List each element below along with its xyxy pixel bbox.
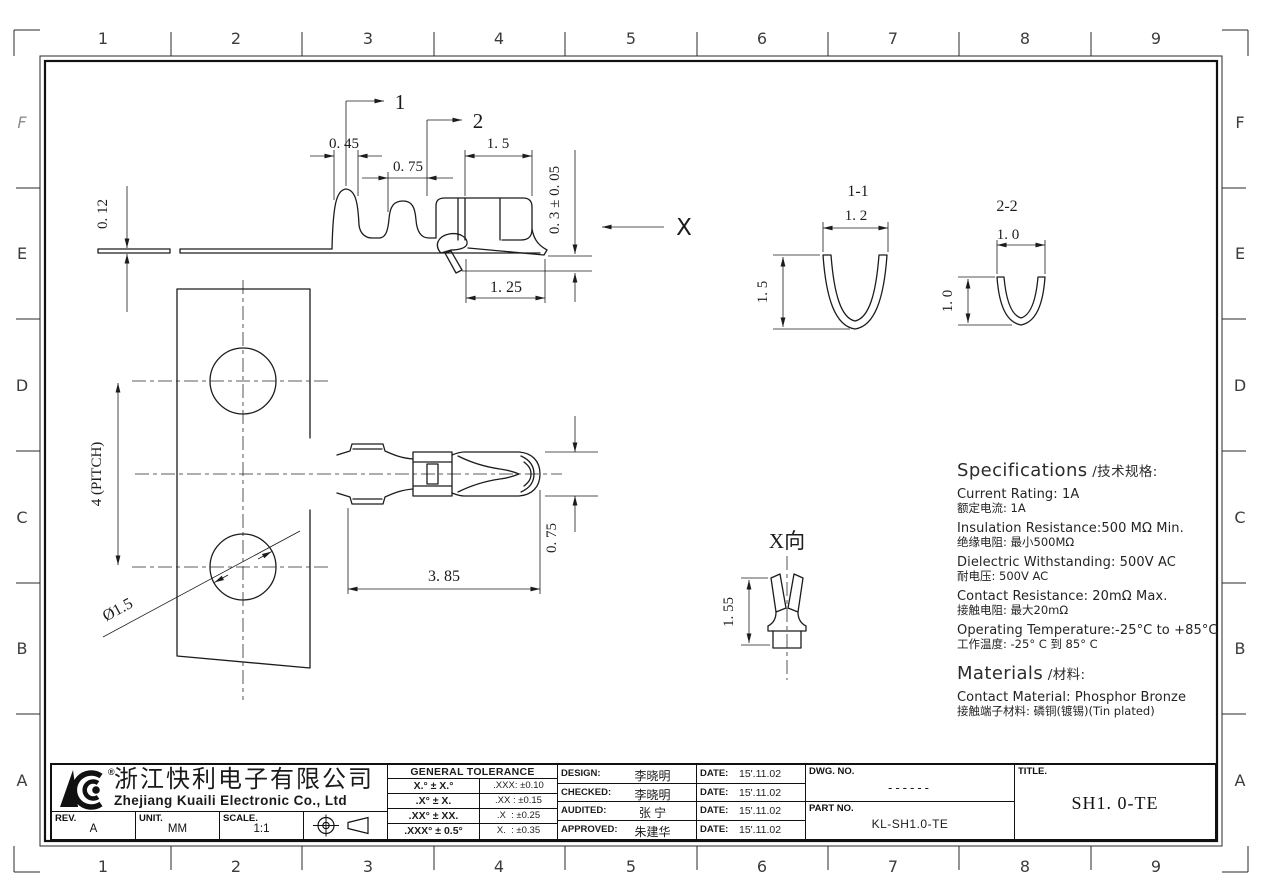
section-view-1-1: 1-1 1. 2 1. 5 bbox=[755, 183, 888, 329]
tolerance-value: .XXX: ±0.10 bbox=[480, 779, 557, 793]
checked-cell: CHECKED: 李晓明 bbox=[558, 784, 697, 803]
projection-symbol-icon bbox=[304, 812, 388, 839]
checked-name: 李晓明 bbox=[613, 786, 692, 803]
scale-cell: SCALE. 1:1 bbox=[220, 812, 304, 839]
grid-row-label: C bbox=[16, 508, 27, 527]
dim-label-1-2: 1. 2 bbox=[845, 208, 868, 224]
dim-0-75 bbox=[362, 172, 453, 212]
specifications-title-en: Specifications bbox=[957, 460, 1088, 481]
registered-mark: ® bbox=[108, 767, 115, 777]
tolerance-row: .X° ± X. .XX : ±0.15 bbox=[388, 794, 558, 809]
unit-value: MM bbox=[136, 823, 219, 835]
section-1-1-shape bbox=[823, 255, 887, 329]
company-logo bbox=[56, 766, 108, 810]
specifications-title: Specifications /技术规格: bbox=[957, 460, 1219, 481]
dim-label-pitch: 4 (PITCH) bbox=[89, 442, 105, 507]
approved-date-cell: DATE: 15'.11.02 bbox=[697, 821, 806, 840]
side-view: 0. 12 0. 45 0. 75 1. 5 1 bbox=[95, 90, 692, 312]
dim-0-3 bbox=[462, 150, 592, 302]
dim-label-1-25: 1. 25 bbox=[490, 279, 522, 296]
approved-cell: APPROVED: 朱建华 bbox=[558, 821, 697, 840]
grid-row-label: D bbox=[16, 376, 28, 395]
title-block: ® 浙江快利电子有限公司 Zhejiang Kuaili Electronic … bbox=[50, 763, 1217, 841]
tolerance-range: .XX° ± XX. bbox=[388, 809, 480, 823]
spec-item: Contact Resistance: 20mΩ Max. 接触电阻: 最大20… bbox=[957, 589, 1219, 617]
unit-cell: UNIT. MM bbox=[136, 812, 220, 839]
section-1-1-title: 1-1 bbox=[847, 183, 868, 200]
dim-label-0-3: 0. 3 ± 0. 05 bbox=[547, 166, 563, 234]
drawing-title-value: SH1. 0-TE bbox=[1015, 793, 1215, 814]
x-direction-view: X向 1. 55 bbox=[721, 529, 806, 680]
grid-column-label: 5 bbox=[626, 857, 636, 876]
company-name-cn: 浙江快利电子有限公司 bbox=[114, 768, 374, 793]
dim-label-1-5-height: 1. 5 bbox=[755, 281, 771, 304]
specifications-block: Specifications /技术规格: Current Rating: 1A… bbox=[957, 460, 1219, 718]
date-label: DATE: bbox=[700, 824, 728, 835]
drawing-sheet: 1 2 3 4 5 6 7 8 9 1 2 3 4 5 6 7 8 9 F E … bbox=[0, 0, 1262, 892]
section-callout-1-label: 1 bbox=[395, 90, 406, 114]
date-label: DATE: bbox=[700, 768, 728, 779]
cad-canvas: 1 2 3 4 5 6 7 8 9 1 2 3 4 5 6 7 8 9 F E … bbox=[0, 0, 1262, 892]
dim-label-diameter: Ø1.5 bbox=[100, 595, 136, 625]
grid-column-label: 7 bbox=[888, 29, 898, 48]
audited-cell: AUDITED: 张 宁 bbox=[558, 802, 697, 821]
dim-label-0-45: 0. 45 bbox=[329, 136, 359, 152]
section-2-2-title: 2-2 bbox=[996, 198, 1017, 215]
tolerance-range: X.° ± X.° bbox=[388, 779, 480, 793]
plan-view: 4 (PITCH) Ø1.5 3. 85 0. 75 bbox=[89, 280, 598, 700]
grid-column-label: 9 bbox=[1151, 29, 1161, 48]
grid-column-label: 4 bbox=[494, 857, 504, 876]
grid-column-label: 6 bbox=[757, 29, 767, 48]
spec-zh: 工作温度: -25° C 到 85° C bbox=[957, 638, 1219, 651]
date-value: 15'.11.02 bbox=[739, 768, 781, 780]
dim-label-1-5: 1. 5 bbox=[487, 136, 510, 152]
grid-column-label: 4 bbox=[494, 29, 504, 48]
sheet-frame bbox=[14, 30, 1248, 872]
dim-label-1-0: 1. 0 bbox=[997, 227, 1020, 243]
part-no-cell: PART NO. KL-SH1.0-TE bbox=[806, 802, 1015, 839]
dim-diameter bbox=[103, 531, 300, 637]
x-direction-label: X bbox=[676, 215, 692, 241]
company-name-en: Zhejiang Kuaili Electronic Co., Ltd bbox=[114, 793, 374, 808]
dwg-no-cell: DWG. NO. ------ bbox=[806, 765, 1015, 802]
grid-column-label: 3 bbox=[363, 29, 373, 48]
dim-label-0-75-width: 0. 75 bbox=[544, 523, 560, 553]
spec-item: Insulation Resistance:500 MΩ Min. 绝缘电阻: … bbox=[957, 521, 1219, 549]
part-no-value: KL-SH1.0-TE bbox=[806, 817, 1014, 831]
rev-cell: REV. A bbox=[52, 812, 136, 839]
tolerance-range: .X° ± X. bbox=[388, 794, 480, 808]
dwg-no-value: ------ bbox=[806, 780, 1014, 795]
date-value: 15'.11.02 bbox=[739, 787, 781, 799]
specifications-title-zh: /技术规格: bbox=[1088, 464, 1158, 480]
grid-column-label: 5 bbox=[626, 29, 636, 48]
company-cell: ® 浙江快利电子有限公司 Zhejiang Kuaili Electronic … bbox=[52, 765, 388, 812]
grid-row-label: E bbox=[17, 244, 27, 263]
spec-en: Dielectric Withstanding: 500V AC bbox=[957, 555, 1219, 570]
drawing-title-cell: TITLE. SH1. 0-TE bbox=[1015, 765, 1215, 839]
grid-row-label: B bbox=[17, 639, 28, 658]
grid-row-label: F bbox=[1235, 113, 1244, 132]
tolerance-row: .XXX° ± 0.5° X. : ±0.35 bbox=[388, 824, 558, 839]
grid-row-label: A bbox=[17, 771, 28, 790]
spec-item: Contact Material: Phosphor Bronze 接触端子材料… bbox=[957, 690, 1219, 718]
tolerance-row: X.° ± X.° .XXX: ±0.10 bbox=[388, 779, 558, 794]
audited-label: AUDITED: bbox=[561, 805, 606, 816]
spec-zh: 额定电流: 1A bbox=[957, 502, 1219, 515]
materials-title-en: Materials bbox=[957, 663, 1043, 684]
tolerance-header: GENERAL TOLERANCE bbox=[388, 765, 558, 779]
spec-en: Operating Temperature:-25°C to +85°C bbox=[957, 623, 1219, 638]
spec-zh: 耐电压: 500V AC bbox=[957, 570, 1219, 583]
section-2-2-shape bbox=[997, 277, 1045, 325]
carrier-strip bbox=[177, 289, 310, 668]
grid-column-label: 6 bbox=[757, 857, 767, 876]
dim-label-0-12: 0. 12 bbox=[95, 199, 111, 229]
spec-item: Dielectric Withstanding: 500V AC 耐电压: 50… bbox=[957, 555, 1219, 583]
tolerance-value: .X : ±0.25 bbox=[480, 809, 557, 823]
spec-item: Operating Temperature:-25°C to +85°C 工作温… bbox=[957, 623, 1219, 651]
checked-date-cell: DATE: 15'.11.02 bbox=[697, 784, 806, 803]
grid-row-label: E bbox=[1235, 244, 1245, 263]
section-view-2-2: 2-2 1. 0 1. 0 bbox=[940, 198, 1045, 325]
date-value: 15'.11.02 bbox=[739, 805, 781, 817]
part-no-label: PART NO. bbox=[809, 803, 854, 814]
dim-1-5 bbox=[465, 150, 532, 196]
design-name: 李晓明 bbox=[613, 767, 692, 784]
section-callout-2 bbox=[427, 120, 462, 196]
dim-label-3-85: 3. 85 bbox=[428, 568, 460, 585]
design-cell: DESIGN: 李晓明 bbox=[558, 765, 697, 784]
dim-1-55 bbox=[741, 578, 770, 645]
grid-column-label: 9 bbox=[1151, 857, 1161, 876]
drawing-title-label: TITLE. bbox=[1018, 766, 1047, 777]
projection-cell bbox=[304, 812, 388, 839]
spec-zh: 绝缘电阻: 最小500MΩ bbox=[957, 536, 1219, 549]
grid-row-label: A bbox=[1235, 771, 1246, 790]
spec-en: Contact Material: Phosphor Bronze bbox=[957, 690, 1219, 705]
tolerance-value: X. : ±0.35 bbox=[480, 824, 557, 839]
x-view-title: X向 bbox=[769, 529, 805, 553]
dim-label-1-55: 1. 55 bbox=[721, 597, 737, 627]
design-label: DESIGN: bbox=[561, 768, 601, 779]
approved-label: APPROVED: bbox=[561, 824, 617, 835]
date-label: DATE: bbox=[700, 805, 728, 816]
scale-value: 1:1 bbox=[220, 823, 303, 835]
spec-item: Current Rating: 1A 额定电流: 1A bbox=[957, 487, 1219, 515]
tolerance-value: .XX : ±0.15 bbox=[480, 794, 557, 808]
audited-name: 张 宁 bbox=[613, 804, 692, 821]
grid-row-label: F bbox=[17, 113, 27, 132]
grid-row-label: C bbox=[1234, 508, 1245, 527]
dwg-no-label: DWG. NO. bbox=[809, 766, 854, 777]
spec-en: Insulation Resistance:500 MΩ Min. bbox=[957, 521, 1219, 536]
materials-title-zh: /材料: bbox=[1043, 667, 1085, 683]
grid-row-label: D bbox=[1234, 376, 1246, 395]
spec-en: Contact Resistance: 20mΩ Max. bbox=[957, 589, 1219, 604]
grid-column-label: 7 bbox=[888, 857, 898, 876]
materials-title: Materials /材料: bbox=[957, 663, 1219, 684]
dim-label-1-0-height: 1. 0 bbox=[940, 290, 956, 313]
grid-column-label: 8 bbox=[1020, 29, 1030, 48]
grid-labels: 1 2 3 4 5 6 7 8 9 1 2 3 4 5 6 7 8 9 F E … bbox=[16, 29, 1246, 876]
rev-value: A bbox=[52, 823, 135, 835]
date-value: 15'.11.02 bbox=[739, 824, 781, 836]
spec-zh: 接触电阻: 最大20mΩ bbox=[957, 604, 1219, 617]
grid-column-label: 8 bbox=[1020, 857, 1030, 876]
checked-label: CHECKED: bbox=[561, 787, 611, 798]
tolerance-range: .XXX° ± 0.5° bbox=[388, 824, 480, 839]
grid-column-label: 2 bbox=[231, 857, 241, 876]
grid-row-label: B bbox=[1235, 639, 1246, 658]
approved-name: 朱建华 bbox=[613, 823, 692, 840]
date-label: DATE: bbox=[700, 787, 728, 798]
design-date-cell: DATE: 15'.11.02 bbox=[697, 765, 806, 784]
spec-zh: 接触端子材料: 磷铜(镀锡)(Tin plated) bbox=[957, 705, 1219, 718]
grid-column-label: 1 bbox=[98, 29, 108, 48]
section-callout-2-label: 2 bbox=[473, 109, 484, 133]
grid-column-label: 2 bbox=[231, 29, 241, 48]
dim-label-0-75: 0. 75 bbox=[393, 159, 423, 175]
grid-column-label: 3 bbox=[363, 857, 373, 876]
spec-en: Current Rating: 1A bbox=[957, 487, 1219, 502]
tolerance-row: .XX° ± XX. .X : ±0.25 bbox=[388, 809, 558, 824]
audited-date-cell: DATE: 15'.11.02 bbox=[697, 802, 806, 821]
grid-column-label: 1 bbox=[98, 857, 108, 876]
